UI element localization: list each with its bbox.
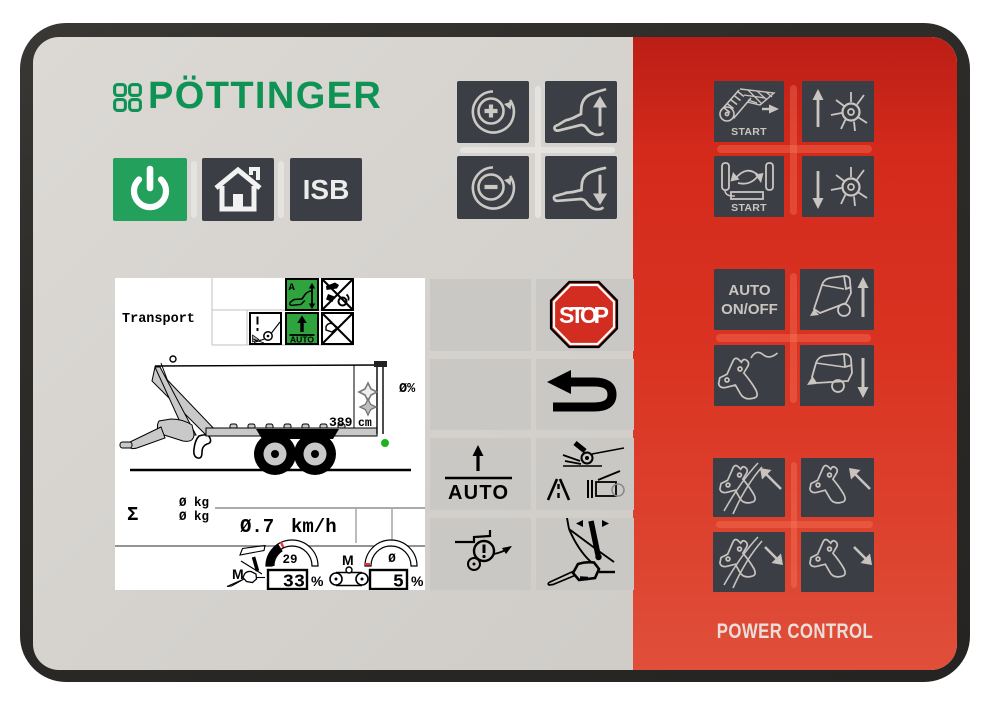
svg-text:Σ: Σ — [127, 504, 138, 526]
svg-text:AUTO: AUTO — [448, 482, 508, 504]
svg-text:AUTO: AUTO — [290, 335, 314, 345]
svg-text:A: A — [289, 282, 296, 294]
svg-text:%: % — [411, 573, 424, 589]
svg-text:Ø kg: Ø kg — [179, 496, 209, 510]
svg-text:START: START — [731, 126, 767, 138]
svg-text:29: 29 — [282, 553, 297, 567]
svg-text:Ø kg: Ø kg — [179, 510, 209, 524]
svg-text:Ø: Ø — [388, 552, 396, 566]
svg-text:Transport: Transport — [122, 312, 195, 327]
svg-text:%: % — [311, 573, 324, 589]
svg-text:Ø.7: Ø.7 — [240, 516, 274, 538]
svg-text:cm: cm — [358, 417, 372, 430]
svg-text:33: 33 — [283, 572, 305, 591]
svg-text:START: START — [731, 202, 767, 214]
svg-text:Ø%: Ø% — [399, 382, 416, 397]
svg-text:STOP: STOP — [559, 302, 609, 328]
svg-text:M: M — [342, 552, 354, 568]
svg-text:5: 5 — [393, 572, 404, 591]
svg-text:km/h: km/h — [291, 516, 337, 538]
svg-text:389: 389 — [329, 415, 353, 430]
